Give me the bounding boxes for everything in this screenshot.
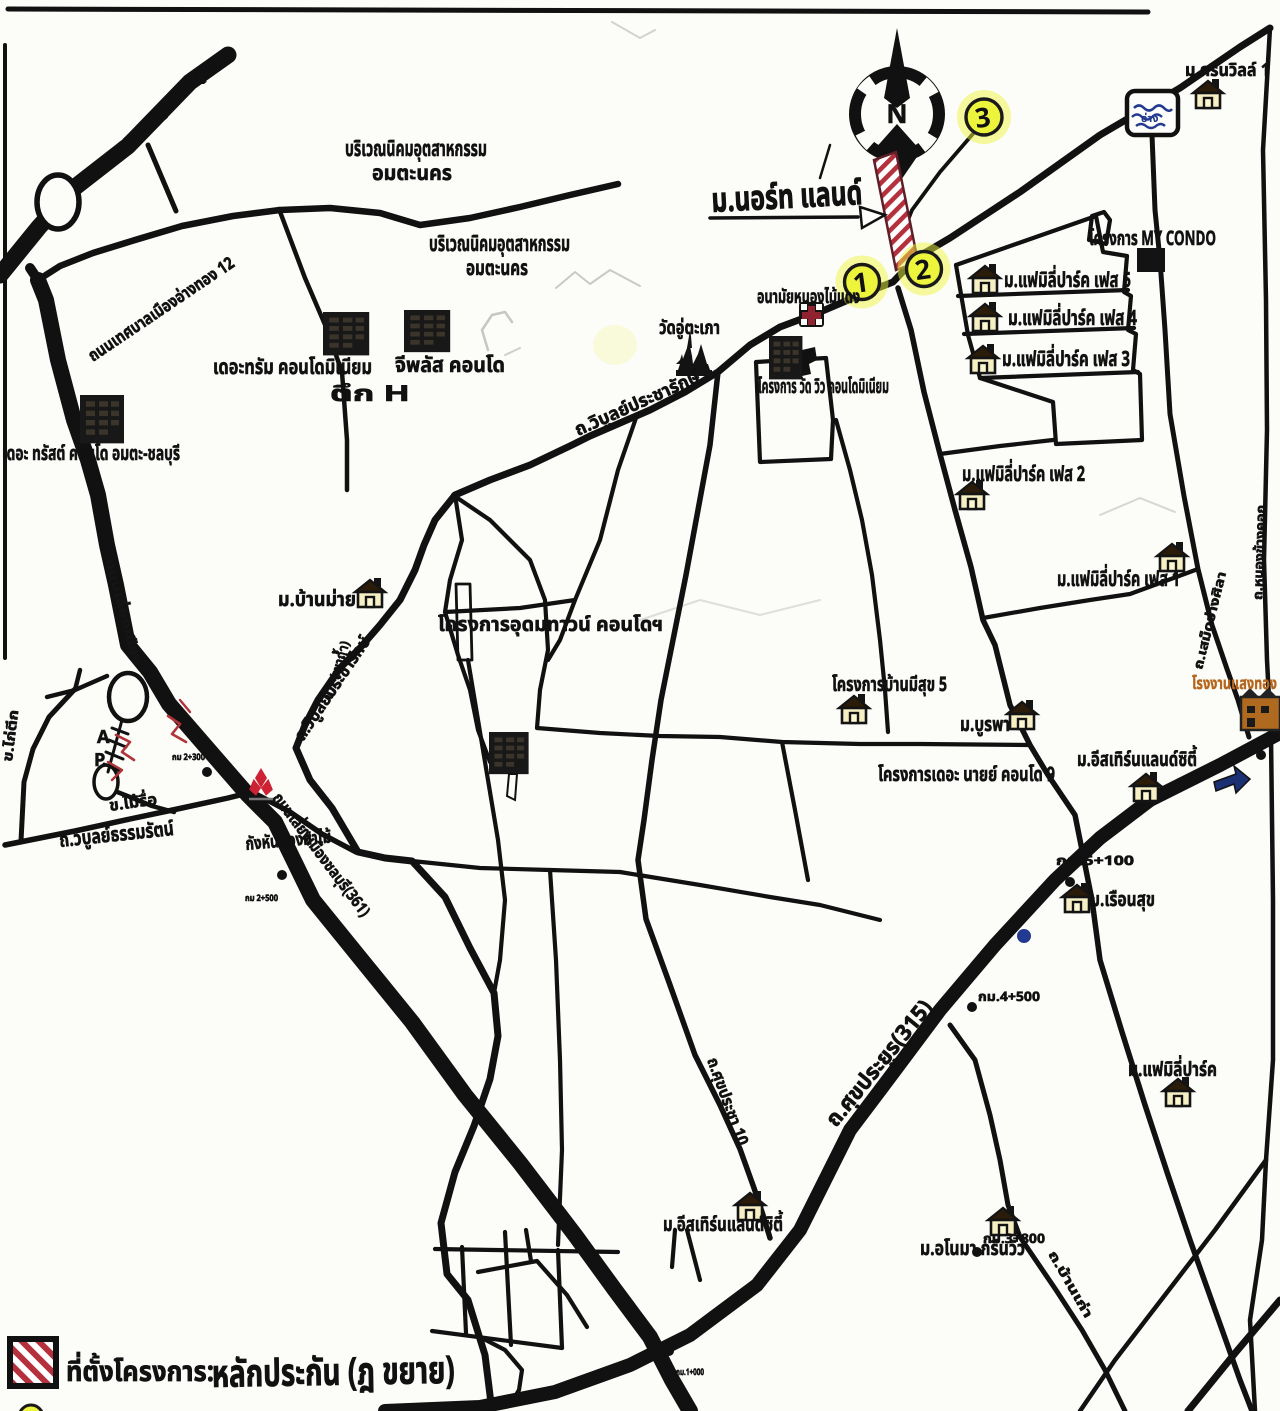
svg-text:จีพลัส คอนโด: จีพลัส คอนโด (395, 351, 505, 382)
svg-text:ม.อีสเทิร์นแลนด์ซิตี้: ม.อีสเทิร์นแลนด์ซิตี้ (1077, 745, 1198, 775)
svg-text:โครงการอุดมทาวน์ คอนโดฯ: โครงการอุดมทาวน์ คอนโดฯ (438, 610, 663, 640)
svg-text:ม.แฟมิลี่ปาร์ค เฟส 2: ม.แฟมิลี่ปาร์ค เฟส 2 (962, 459, 1085, 491)
svg-text:ม.แฟมิลี่ปาร์ค เฟส 1: ม.แฟมิลี่ปาร์ค เฟส 1 (1057, 564, 1180, 596)
svg-text:ม.บ้านม่าย: ม.บ้านม่าย (278, 585, 356, 615)
svg-text:อมตะนคร: อมตะนคร (372, 159, 452, 190)
svg-text:ม.แฟมิลี่ปาร์ค เฟส 4: ม.แฟมิลี่ปาร์ค เฟส 4 (1008, 303, 1137, 335)
svg-text:ม.แฟมิลี่ปาร์ค เฟส 5: ม.แฟมิลี่ปาร์ค เฟส 5 (1004, 265, 1131, 297)
svg-text:วัดอู่ตะเภา: วัดอู่ตะเภา (659, 314, 720, 343)
svg-text:กม.1+000: กม.1+000 (676, 1366, 704, 1380)
svg-text:P: P (94, 748, 105, 775)
svg-text:ม.แฟมิลี่ปาร์ค เฟส 3: ม.แฟมิลี่ปาร์ค เฟส 3 (1002, 344, 1130, 376)
svg-text:ม.อโนมา กรีนวิว: ม.อโนมา กรีนวิว (920, 1234, 1025, 1264)
svg-text:โครงการ วัด วิว คอนโดมิเนียม: โครงการ วัด วิว คอนโดมิเนียม (758, 372, 889, 402)
svg-text:อ่าง: อ่าง (1141, 110, 1159, 127)
svg-text:กม 2+300: กม 2+300 (172, 751, 205, 765)
svg-text:ม.เรือนสุข: ม.เรือนสุข (1090, 885, 1155, 915)
svg-text:ม.กรีนวิลล์ 1: ม.กรีนวิลล์ 1 (1185, 58, 1270, 85)
svg-text:อนามัยหนองไม้แดง: อนามัยหนองไม้แดง (757, 283, 860, 312)
svg-text:N: N (886, 95, 907, 135)
svg-text:หลักประกัน (ฎ ขยาย): หลักประกัน (ฎ ขยาย) (211, 1344, 455, 1405)
svg-text:โครงการ MY CONDO: โครงการ MY CONDO (1089, 224, 1216, 254)
svg-text:โครงการเดอะ นายย์ คอนโด 9: โครงการเดอะ นายย์ คอนโด 9 (878, 760, 1055, 790)
svg-text:เดอะ ทรัสต์ คอนโด อมตะ-ชลบุรี: เดอะ ทรัสต์ คอนโด อมตะ-ชลบุรี (2, 439, 180, 469)
svg-text:ม.อีสเทิร์นแลนด์ซิตี้: ม.อีสเทิร์นแลนด์ซิตี้ (663, 1210, 784, 1240)
svg-text:กม.4+500: กม.4+500 (978, 987, 1040, 1007)
svg-text:ที่ตั้งโครงการ:: ที่ตั้งโครงการ: (66, 1351, 214, 1394)
svg-text:ตึก H: ตึก H (330, 378, 410, 411)
svg-text:ถ.หนองข้างคอก: ถ.หนองข้างคอก (1248, 505, 1271, 601)
svg-text:โครงการบ้านมีสุข 5: โครงการบ้านมีสุข 5 (832, 670, 947, 700)
svg-text:ม.นอร์ท แลนด์: ม.นอร์ท แลนด์ (710, 169, 863, 228)
svg-text:กม.5+100: กม.5+100 (1056, 851, 1134, 871)
svg-text:ม.แฟมิลี่ปาร์ค: ม.แฟมิลี่ปาร์ค (1128, 1055, 1217, 1085)
svg-text:ม.บูรพา: ม.บูรพา (960, 710, 1010, 740)
svg-text:กม 2+500: กม 2+500 (245, 892, 278, 906)
svg-text:อมตะนคร: อมตะนคร (466, 254, 528, 285)
svg-text:โรงงานแสงทอง: โรงงานแสงทอง (1192, 671, 1277, 697)
